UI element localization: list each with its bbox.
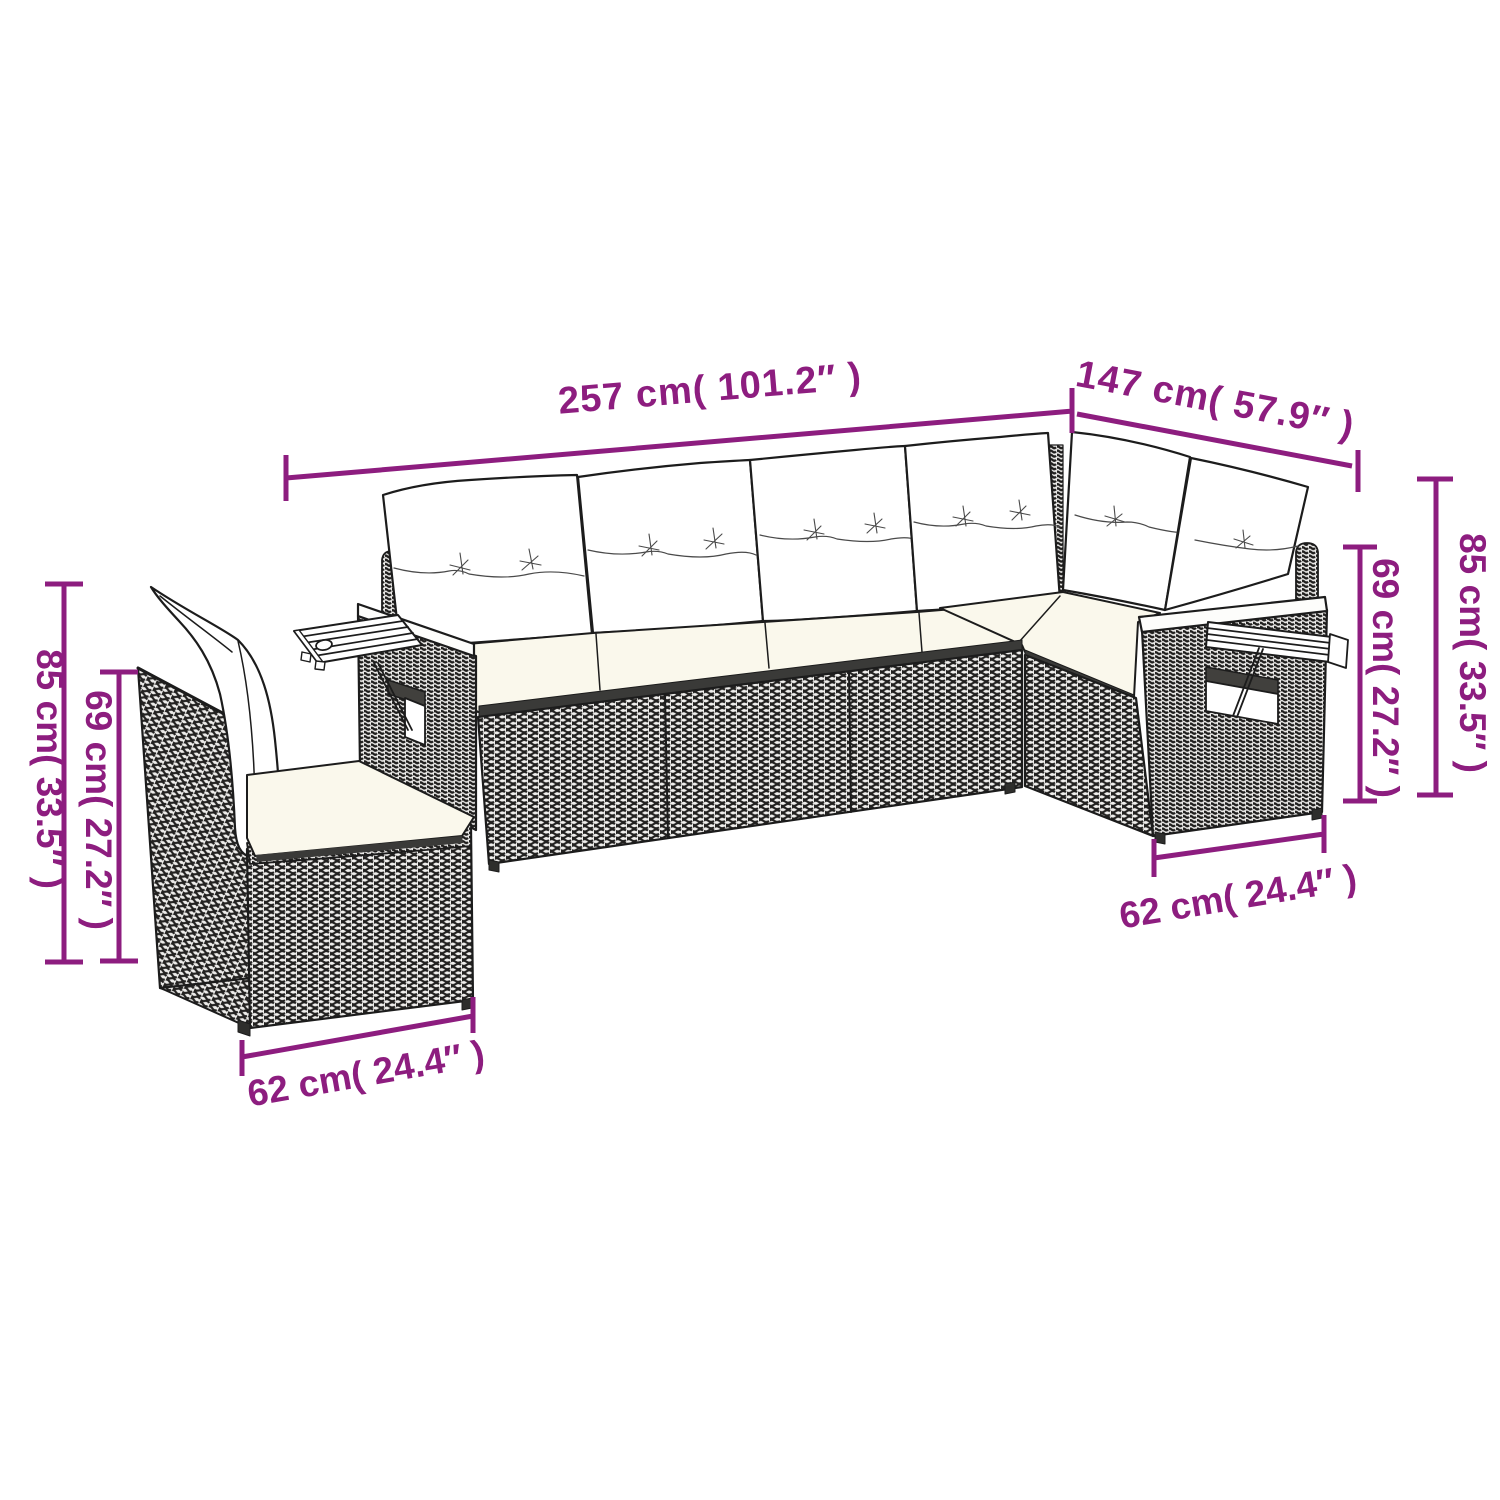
svg-text:69 cm( 27.2″ ): 69 cm( 27.2″ ) [78, 690, 119, 930]
svg-text:85 cm( 33.5″ ): 85 cm( 33.5″ ) [29, 649, 70, 889]
svg-text:69 cm( 27.2″ ): 69 cm( 27.2″ ) [1365, 558, 1406, 798]
svg-text:85 cm( 33.5″ ): 85 cm( 33.5″ ) [1452, 533, 1493, 773]
